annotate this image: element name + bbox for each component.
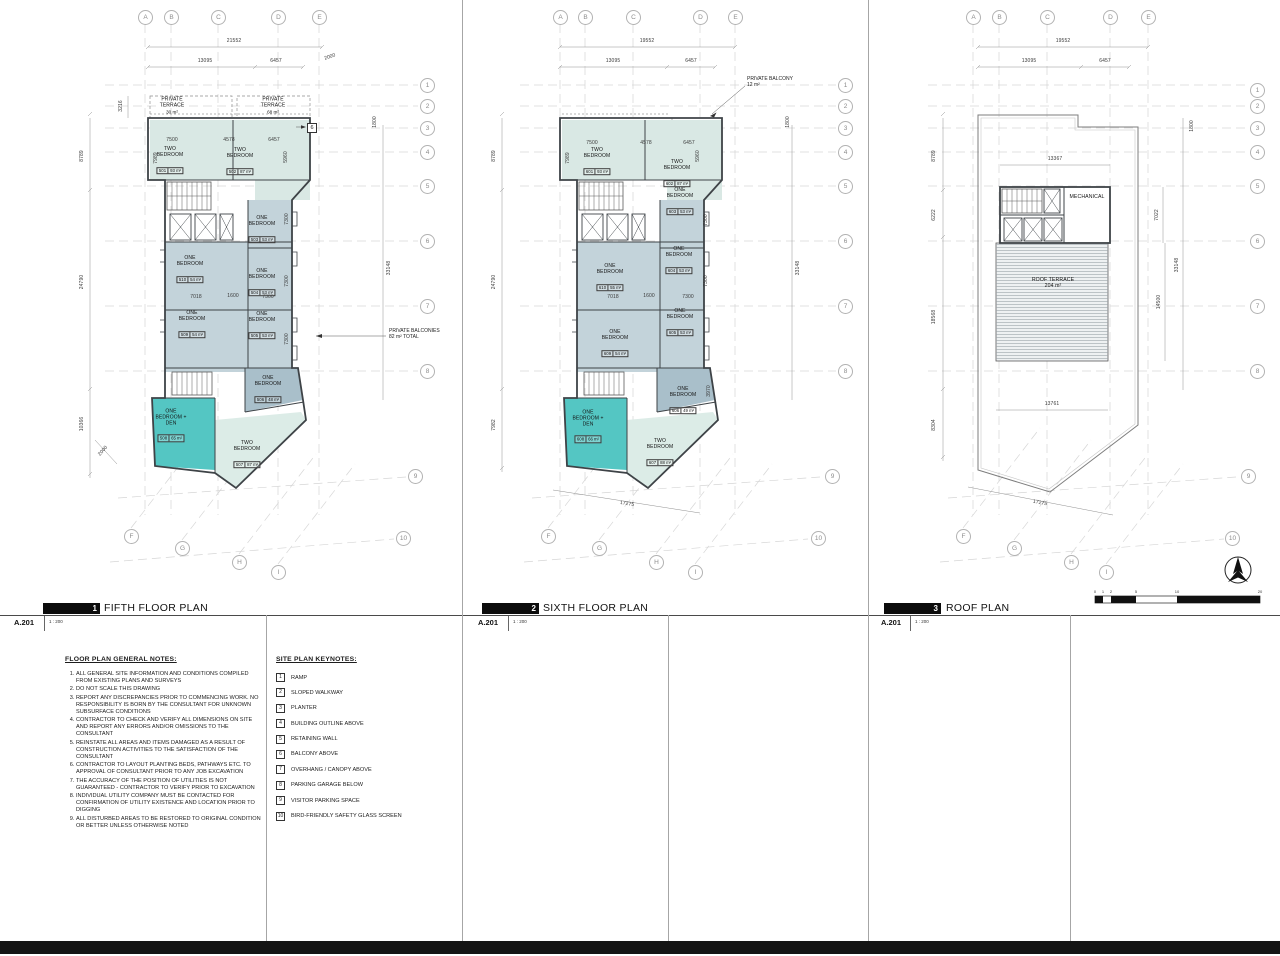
note-item: DO NOT SCALE THIS DRAWING <box>76 686 263 693</box>
sheet-number-3: A.201 <box>881 618 901 627</box>
room-area: 55 m² <box>609 285 623 291</box>
grid-bubble-i: I <box>271 565 286 580</box>
dim-label: 6457 <box>270 58 282 64</box>
grid-bubble-6: 6 <box>838 234 853 249</box>
balconies-annotation: PRIVATE BALCONIES 82 m² TOTAL <box>389 328 440 340</box>
dim-label: 7018 <box>190 294 202 300</box>
grid-bubble-a: A <box>138 10 153 25</box>
keynotes-list: 1RAMP 2SLOPED WALKWAY 3PLANTER 4BUILDING… <box>276 673 416 821</box>
room-604: ONE BEDROOM 60453 m² <box>665 247 692 277</box>
grid-bubble-h: H <box>1064 555 1079 570</box>
sixth-floor-plan-panel: A B C D E 1 2 3 4 5 6 7 8 9 10 F G H I 1… <box>462 0 868 610</box>
room-tag: 60954 m² <box>601 350 628 358</box>
dim-label: 7300 <box>284 213 290 225</box>
grid-bubble-4: 4 <box>838 145 853 160</box>
grid-bubble-c: C <box>626 10 641 25</box>
room-609: ONE BEDROOM 60954 m² <box>601 330 628 360</box>
keynote-item: 7OVERHANG / CANOPY ABOVE <box>276 765 416 774</box>
scale-bar-label: 0 <box>1094 589 1096 594</box>
note-item: ALL GENERAL SITE INFORMATION AND CONDITI… <box>76 671 263 685</box>
room-area: 54 m² <box>189 277 203 283</box>
grid-bubble-b: B <box>578 10 593 25</box>
room-name: PRIVATE TERRACE <box>160 97 185 109</box>
dim-label: 33148 <box>795 261 801 275</box>
room-606: ONE BEDROOM 60649 m² <box>669 387 696 417</box>
dim-label: 7300 <box>703 214 709 226</box>
room-name: ONE BEDROOM + DEN <box>572 410 603 427</box>
dim-label: 13761 <box>1045 401 1059 407</box>
room-number: 508 <box>158 436 169 442</box>
room-area: 49 m² <box>682 408 696 414</box>
fifth-floor-plan-drawing <box>0 0 462 610</box>
grid-bubble-d: D <box>693 10 708 25</box>
note-item: THE ACCURACY OF THE POSITION OF UTILITIE… <box>76 778 263 792</box>
general-notes-title: FLOOR PLAN GENERAL NOTES: <box>65 656 263 663</box>
keynote-item: 6BALCONY ABOVE <box>276 750 416 759</box>
keynote-item: 8PARKING GARAGE BELOW <box>276 781 416 790</box>
dim-label: 18568 <box>931 310 937 324</box>
fifth-floor-plan-panel: A B C D E 1 2 3 4 5 6 7 8 9 10 F G H I 2… <box>0 0 462 610</box>
room-tag: 60866 m² <box>574 436 601 444</box>
sheet-number-1: A.201 <box>14 618 34 627</box>
room-number: 607 <box>647 460 658 466</box>
site-plan-keynotes: SITE PLAN KEYNOTES: 1RAMP 2SLOPED WALKWA… <box>276 656 416 827</box>
room-tag: 60353 m² <box>666 208 693 216</box>
room-tag: 50648 m² <box>254 396 281 404</box>
keynote-number: 9 <box>276 796 285 805</box>
grid-bubble-2: 2 <box>1250 99 1265 114</box>
room-603: ONE BEDROOM 60353 m² <box>666 188 693 218</box>
room-tag: 50865 m² <box>157 435 184 443</box>
note-item: CONTRACTOR TO CHECK AND VERIFY ALL DIMEN… <box>76 717 263 738</box>
room-number: 503 <box>249 237 260 243</box>
grid-bubble-5: 5 <box>420 179 435 194</box>
room-number: 502 <box>227 169 238 175</box>
room-number: 601 <box>584 169 595 175</box>
keynote-number: 5 <box>276 735 285 744</box>
room-area: 68 m² <box>261 110 286 115</box>
grid-bubble-d: D <box>271 10 286 25</box>
dim-label: 7300 <box>682 294 694 300</box>
dim-label: 6222 <box>931 209 937 221</box>
room-name: ONE BEDROOM <box>254 376 281 388</box>
room-tag: 50787 m² <box>233 461 260 469</box>
keynote-label: SLOPED WALKWAY <box>291 690 343 696</box>
room-605: ONE BEDROOM 60553 m² <box>666 309 693 339</box>
room-number: 602 <box>664 181 675 187</box>
grid-bubble-1: 1 <box>1250 83 1265 98</box>
dim-label: 7989 <box>565 152 571 164</box>
note-item: CONTRACTOR TO LAYOUT PLANTING BEDS, PATH… <box>76 762 263 776</box>
keynote-6-box: 6 <box>307 123 317 133</box>
room-name: TWO BEDROOM <box>226 148 253 160</box>
room-610: ONE BEDROOM 61055 m² <box>596 264 623 294</box>
keynote-label: BIRD-FRIENDLY SAFETY GLASS SCREEN <box>291 813 402 819</box>
room-number: 605 <box>667 330 678 336</box>
dim-label: 13095 <box>606 58 620 64</box>
room-private-terrace-1: PRIVATE TERRACE 30 m² <box>160 97 185 114</box>
room-name: ONE BEDROOM <box>178 311 205 323</box>
grid-bubble-9: 9 <box>1241 469 1256 484</box>
room-name: TWO BEDROOM <box>583 148 610 160</box>
keynote-number: 6 <box>276 750 285 759</box>
grid-bubble-h: H <box>649 555 664 570</box>
room-number: 509 <box>179 332 190 338</box>
grid-bubble-9: 9 <box>408 469 423 484</box>
room-504: ONE BEDROOM 50453 m² <box>248 269 275 299</box>
grid-bubble-1: 1 <box>838 78 853 93</box>
room-number: 510 <box>177 277 188 283</box>
grid-bubble-c: C <box>1040 10 1055 25</box>
grid-bubble-7: 7 <box>1250 299 1265 314</box>
dim-label: 10366 <box>79 417 85 431</box>
title-divider-tick <box>508 616 509 631</box>
grid-bubble-4: 4 <box>420 145 435 160</box>
dim-label: 7300 <box>703 275 709 287</box>
sixth-floor-plan-drawing <box>462 0 868 610</box>
panel-divider <box>668 615 669 941</box>
dim-label: 8304 <box>931 419 937 431</box>
dim-label: 5960 <box>283 151 289 163</box>
dim-label: 7500 <box>166 137 178 143</box>
dim-label: 33148 <box>386 261 392 275</box>
room-507: TWO BEDROOM 50787 m² <box>233 441 260 471</box>
grid-bubble-b: B <box>164 10 179 25</box>
keynote-label: VISITOR PARKING SPACE <box>291 798 360 804</box>
grid-bubble-e: E <box>1141 10 1156 25</box>
grid-bubble-c: C <box>211 10 226 25</box>
dim-label: 7022 <box>1154 209 1160 221</box>
grid-bubble-d: D <box>1103 10 1118 25</box>
grid-bubble-10: 10 <box>1225 531 1240 546</box>
room-tag: 50453 m² <box>248 289 275 297</box>
view-number-block-2: 2 <box>482 603 539 614</box>
room-area: 30 m² <box>160 110 185 115</box>
room-502: TWO BEDROOM 50287 m² <box>226 148 253 178</box>
grid-bubble-8: 8 <box>420 364 435 379</box>
room-number: 505 <box>249 333 260 339</box>
grid-bubble-f: F <box>124 529 139 544</box>
keynote-item: 4BUILDING OUTLINE ABOVE <box>276 719 416 728</box>
room-tag: 60193 m² <box>583 168 610 176</box>
room-area: 48 m² <box>267 397 281 403</box>
grid-bubble-5: 5 <box>1250 179 1265 194</box>
room-tag: 60788 m² <box>646 459 673 467</box>
view-scale-3: 1 : 200 <box>915 619 929 624</box>
balcony-annotation: PRIVATE BALCONY 12 m² <box>747 76 793 88</box>
drawing-sheet: A B C D E 1 2 3 4 5 6 7 8 9 10 F G H I 2… <box>0 0 1280 956</box>
room-area: 53 m² <box>261 333 275 339</box>
panel-divider <box>266 615 267 941</box>
grid-bubble-a: A <box>553 10 568 25</box>
room-area: 53 m² <box>679 330 693 336</box>
room-number: 609 <box>602 351 613 357</box>
dim-label: 6457 <box>683 140 695 146</box>
grid-bubble-e: E <box>312 10 327 25</box>
grid-bubble-a: A <box>966 10 981 25</box>
room-name: ONE BEDROOM + DEN <box>155 409 186 426</box>
room-tag: 60649 m² <box>669 407 696 415</box>
grid-bubble-g: G <box>1007 541 1022 556</box>
room-area: 53 m² <box>261 290 275 296</box>
room-608: ONE BEDROOM + DEN 60866 m² <box>572 410 603 445</box>
keynote-label: RAMP <box>291 675 307 681</box>
roof-terrace-label: ROOF TERRACE 204 m² <box>1032 278 1074 290</box>
dim-label: 14500 <box>1156 295 1162 309</box>
grid-bubble-4: 4 <box>1250 145 1265 160</box>
dim-label: 13095 <box>1022 58 1036 64</box>
room-tag: 60553 m² <box>666 329 693 337</box>
grid-bubble-2: 2 <box>420 99 435 114</box>
room-tag: 50553 m² <box>248 332 275 340</box>
room-tag: 50954 m² <box>178 331 205 339</box>
dim-label: 7018 <box>607 294 619 300</box>
grid-bubble-f: F <box>541 529 556 544</box>
room-name: ONE BEDROOM <box>669 387 696 399</box>
keynote-number: 10 <box>276 812 285 821</box>
note-item: INDIVIDUAL UTILITY COMPANY MUST BE CONTA… <box>76 793 263 814</box>
view-number-block-1: 1 <box>43 603 100 614</box>
room-name: ONE BEDROOM <box>666 309 693 321</box>
note-item: REINSTATE ALL AREAS AND ITEMS DAMAGED AS… <box>76 740 263 761</box>
grid-bubble-b: B <box>992 10 1007 25</box>
room-510: ONE BEDROOM 51054 m² <box>176 256 203 286</box>
note-item: REPORT ANY DISCREPANCIES PRIOR TO COMMEN… <box>76 695 263 716</box>
dim-label: 19552 <box>1056 38 1070 44</box>
room-name: TWO BEDROOM <box>663 160 690 172</box>
dim-label: 1800 <box>1189 120 1195 132</box>
grid-bubble-e: E <box>728 10 743 25</box>
dim-label: 7500 <box>586 140 598 146</box>
dim-label: 1600 <box>643 293 655 299</box>
room-number: 604 <box>666 268 677 274</box>
room-name: PRIVATE TERRACE <box>261 97 286 109</box>
grid-bubble-7: 7 <box>838 299 853 314</box>
room-509: ONE BEDROOM 50954 m² <box>178 311 205 341</box>
room-tag: 60453 m² <box>665 267 692 275</box>
room-area: 65 m² <box>170 436 184 442</box>
room-name: ONE BEDROOM <box>601 330 628 342</box>
room-number: 608 <box>575 437 586 443</box>
dim-label: 7982 <box>491 419 497 431</box>
dim-label: 4578 <box>223 137 235 143</box>
grid-bubble-f: F <box>956 529 971 544</box>
dim-label: 6457 <box>685 58 697 64</box>
scale-bar-label: 2 <box>1110 589 1112 594</box>
room-name: TWO BEDROOM <box>156 147 183 159</box>
grid-bubble-g: G <box>175 541 190 556</box>
room-name: ONE BEDROOM <box>248 269 275 281</box>
keynote-item: 1RAMP <box>276 673 416 682</box>
room-name: ONE BEDROOM <box>665 247 692 259</box>
keynote-label: RETAINING WALL <box>291 736 338 742</box>
dim-label: 7300 <box>284 333 290 345</box>
grid-bubble-2: 2 <box>838 99 853 114</box>
dim-label: 13095 <box>198 58 212 64</box>
dim-label: 6457 <box>268 137 280 143</box>
general-notes: FLOOR PLAN GENERAL NOTES: ALL GENERAL SI… <box>65 656 263 831</box>
room-area: 93 m² <box>169 168 183 174</box>
room-area: 87 m² <box>676 181 690 187</box>
title-divider-tick <box>44 616 45 631</box>
room-area: 53 m² <box>679 209 693 215</box>
room-508: ONE BEDROOM + DEN 50865 m² <box>155 409 186 444</box>
room-number: 603 <box>667 209 678 215</box>
room-tag: 50353 m² <box>248 236 275 244</box>
room-name: ONE BEDROOM <box>248 216 275 228</box>
scale-bar-label: 1 <box>1102 589 1104 594</box>
panel-divider <box>1070 615 1071 941</box>
keynote-label: BALCONY ABOVE <box>291 751 338 757</box>
room-602: TWO BEDROOM 60287 m² <box>663 160 690 190</box>
room-area: 93 m² <box>596 169 610 175</box>
panel-divider <box>868 0 869 941</box>
grid-bubble-6: 6 <box>420 234 435 249</box>
room-506: ONE BEDROOM 50648 m² <box>254 376 281 406</box>
keynote-label: PLANTER <box>291 705 317 711</box>
keynote-item: 5RETAINING WALL <box>276 735 416 744</box>
room-505: ONE BEDROOM 50553 m² <box>248 312 275 342</box>
dim-label: 13367 <box>1048 156 1062 162</box>
grid-bubble-7: 7 <box>420 299 435 314</box>
keynotes-title: SITE PLAN KEYNOTES: <box>276 656 416 663</box>
room-number: 610 <box>597 285 608 291</box>
grid-bubble-1: 1 <box>420 78 435 93</box>
room-number: 504 <box>249 290 260 296</box>
room-area: 87 m² <box>239 169 253 175</box>
grid-bubble-3: 3 <box>420 121 435 136</box>
scale-bar-label: 20 <box>1258 589 1262 594</box>
dim-label: 3216 <box>118 100 124 112</box>
dim-label: 33148 <box>1174 258 1180 272</box>
dim-label: 8789 <box>491 150 497 162</box>
dim-label: 3970 <box>706 385 712 397</box>
room-name: TWO BEDROOM <box>233 441 260 453</box>
room-area: 66 m² <box>587 437 601 443</box>
room-area: 87 m² <box>246 462 260 468</box>
room-tag: 50287 m² <box>226 168 253 176</box>
room-name: ONE BEDROOM <box>596 264 623 276</box>
room-number: 507 <box>234 462 245 468</box>
dim-label: 8789 <box>931 150 937 162</box>
sheet-bottom-bar <box>0 941 1280 954</box>
keynote-item: 9VISITOR PARKING SPACE <box>276 796 416 805</box>
dim-label: 8789 <box>79 150 85 162</box>
room-607: TWO BEDROOM 60788 m² <box>646 439 673 469</box>
room-tag: 60287 m² <box>663 180 690 188</box>
room-mechanical: MECHANICAL <box>1069 195 1104 201</box>
grid-bubble-3: 3 <box>838 121 853 136</box>
dim-label: 1800 <box>372 116 378 128</box>
room-area: 88 m² <box>659 460 673 466</box>
dim-label: 21552 <box>227 38 241 44</box>
keynote-number: 1 <box>276 673 285 682</box>
dim-label: 1600 <box>227 293 239 299</box>
grid-bubble-6: 6 <box>1250 234 1265 249</box>
keynote-number: 7 <box>276 765 285 774</box>
keynote-number: 8 <box>276 781 285 790</box>
room-name: ONE BEDROOM <box>176 256 203 268</box>
room-name: TWO BEDROOM <box>646 439 673 451</box>
dim-label: 19552 <box>640 38 654 44</box>
room-tag: 51054 m² <box>176 276 203 284</box>
scale-bar-label: 10 <box>1175 589 1179 594</box>
grid-bubble-10: 10 <box>811 531 826 546</box>
room-area: 53 m² <box>261 237 275 243</box>
view-title-2: SIXTH FLOOR PLAN <box>543 602 648 614</box>
grid-bubble-10: 10 <box>396 531 411 546</box>
keynote-number: 4 <box>276 719 285 728</box>
keynote-number: 3 <box>276 704 285 713</box>
view-scale-2: 1 : 200 <box>513 619 527 624</box>
grid-bubble-8: 8 <box>838 364 853 379</box>
title-divider-tick <box>910 616 911 631</box>
dim-label: 4578 <box>640 140 652 146</box>
grid-bubble-3: 3 <box>1250 121 1265 136</box>
room-503: ONE BEDROOM 50353 m² <box>248 216 275 246</box>
room-tag: 61055 m² <box>596 284 623 292</box>
grid-bubble-i: I <box>688 565 703 580</box>
dim-label: 1800 <box>785 116 791 128</box>
room-number: 501 <box>157 168 168 174</box>
dim-label: 5960 <box>695 150 701 162</box>
room-tag: 50193 m² <box>156 167 183 175</box>
room-name: MECHANICAL <box>1069 195 1104 201</box>
dim-label: 24790 <box>79 275 85 289</box>
keynote-label: OVERHANG / CANOPY ABOVE <box>291 767 372 773</box>
room-name: ONE BEDROOM <box>248 312 275 324</box>
view-title-1: FIFTH FLOOR PLAN <box>104 602 208 614</box>
roof-plan-drawing <box>868 0 1280 610</box>
keynote-label: PARKING GARAGE BELOW <box>291 782 363 788</box>
grid-bubble-9: 9 <box>825 469 840 484</box>
view-scale-1: 1 : 200 <box>49 619 63 624</box>
grid-bubble-h: H <box>232 555 247 570</box>
room-601: TWO BEDROOM 60193 m² <box>583 148 610 178</box>
room-number: 606 <box>670 408 681 414</box>
room-number: 506 <box>255 397 266 403</box>
room-501: TWO BEDROOM 50193 m² <box>156 147 183 177</box>
keynote-number: 2 <box>276 688 285 697</box>
dim-label: 7300 <box>284 275 290 287</box>
panel-divider <box>462 0 463 941</box>
keynote-item: 2SLOPED WALKWAY <box>276 688 416 697</box>
grid-bubble-g: G <box>592 541 607 556</box>
room-area: 53 m² <box>678 268 692 274</box>
keynote-item: 10BIRD-FRIENDLY SAFETY GLASS SCREEN <box>276 812 416 821</box>
room-name: ROOF TERRACE 204 m² <box>1032 278 1074 290</box>
grid-bubble-8: 8 <box>1250 364 1265 379</box>
dim-label: 24790 <box>491 275 497 289</box>
title-rule <box>0 615 1280 616</box>
scale-bar-label: 5 <box>1135 589 1137 594</box>
room-area: 54 m² <box>614 351 628 357</box>
keynote-item: 3PLANTER <box>276 704 416 713</box>
note-item: ALL DISTURBED AREAS TO BE RESTORED TO OR… <box>76 816 263 830</box>
dim-label: 6457 <box>1099 58 1111 64</box>
view-title-3: ROOF PLAN <box>946 602 1009 614</box>
view-number-block-3: 3 <box>884 603 941 614</box>
room-name: ONE BEDROOM <box>666 188 693 200</box>
sheet-number-2: A.201 <box>478 618 498 627</box>
roof-plan-panel: A B C D E 1 2 3 4 5 6 7 8 9 10 F G H I 1… <box>868 0 1280 610</box>
grid-bubble-5: 5 <box>838 179 853 194</box>
room-area: 54 m² <box>191 332 205 338</box>
room-private-terrace-2: PRIVATE TERRACE 68 m² <box>261 97 286 114</box>
grid-bubble-i: I <box>1099 565 1114 580</box>
general-notes-list: ALL GENERAL SITE INFORMATION AND CONDITI… <box>65 671 263 830</box>
keynote-label: BUILDING OUTLINE ABOVE <box>291 721 364 727</box>
